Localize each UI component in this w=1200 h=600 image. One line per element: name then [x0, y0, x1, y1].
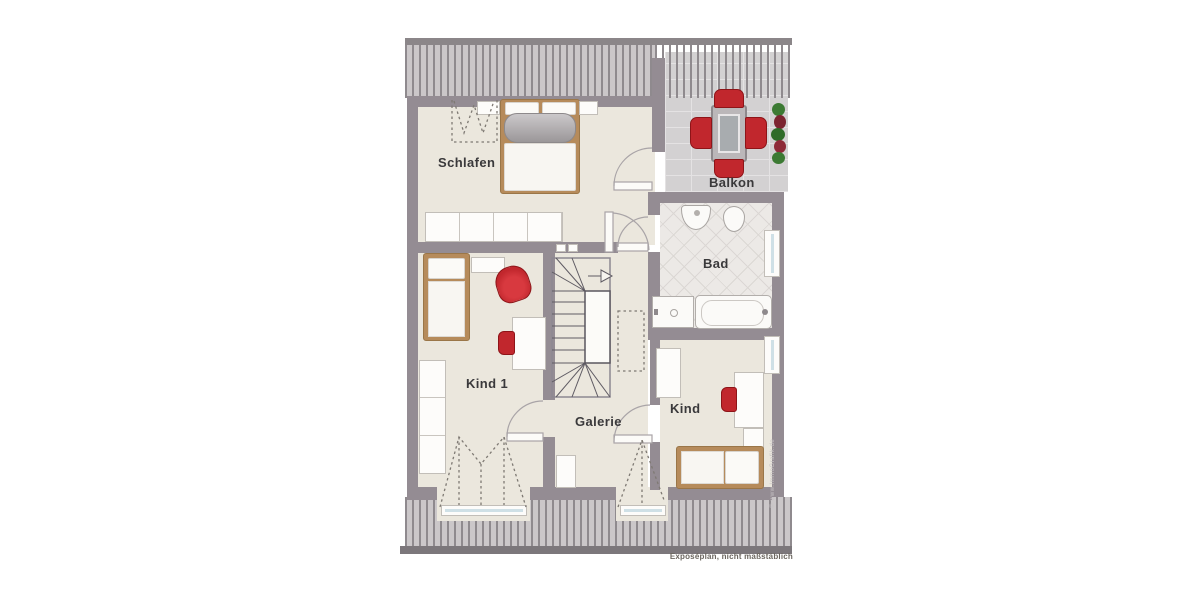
footer-note: Exposéplan, nicht maßstäblich [593, 552, 793, 561]
room-label-galerie: Galerie [575, 414, 622, 429]
room-label-schlafen: Schlafen [438, 155, 495, 170]
room-label-balkon: Balkon [709, 175, 755, 190]
linework-layer [0, 0, 1200, 600]
kind1-door-leaf [507, 433, 543, 441]
schlafen-door-leaf [617, 243, 648, 251]
kind1-door-arc [507, 401, 543, 437]
schlafen-sloped-storage-zigzag [454, 101, 494, 133]
doors [507, 148, 652, 443]
floorplan-canvas: Schlafen Balkon Bad Kind 1 Galerie Kind … [0, 0, 1200, 600]
gallery-dashed-opening [618, 311, 644, 371]
dormer-right-outline [618, 440, 664, 507]
dormer-left-outline [440, 437, 526, 507]
balcony-door-leaf [614, 182, 652, 190]
kind-door-leaf [614, 435, 652, 443]
schlafen-sloped-storage-outline [452, 100, 497, 142]
room-label-bad: Bad [703, 256, 729, 271]
bad-door-leaf [605, 212, 613, 252]
room-label-kind1: Kind 1 [466, 376, 508, 391]
staircase [552, 258, 612, 397]
watermark: © www.ImmoGrafik.de [770, 439, 776, 508]
room-label-kind: Kind [670, 401, 700, 416]
balcony-door-arc [614, 148, 652, 186]
